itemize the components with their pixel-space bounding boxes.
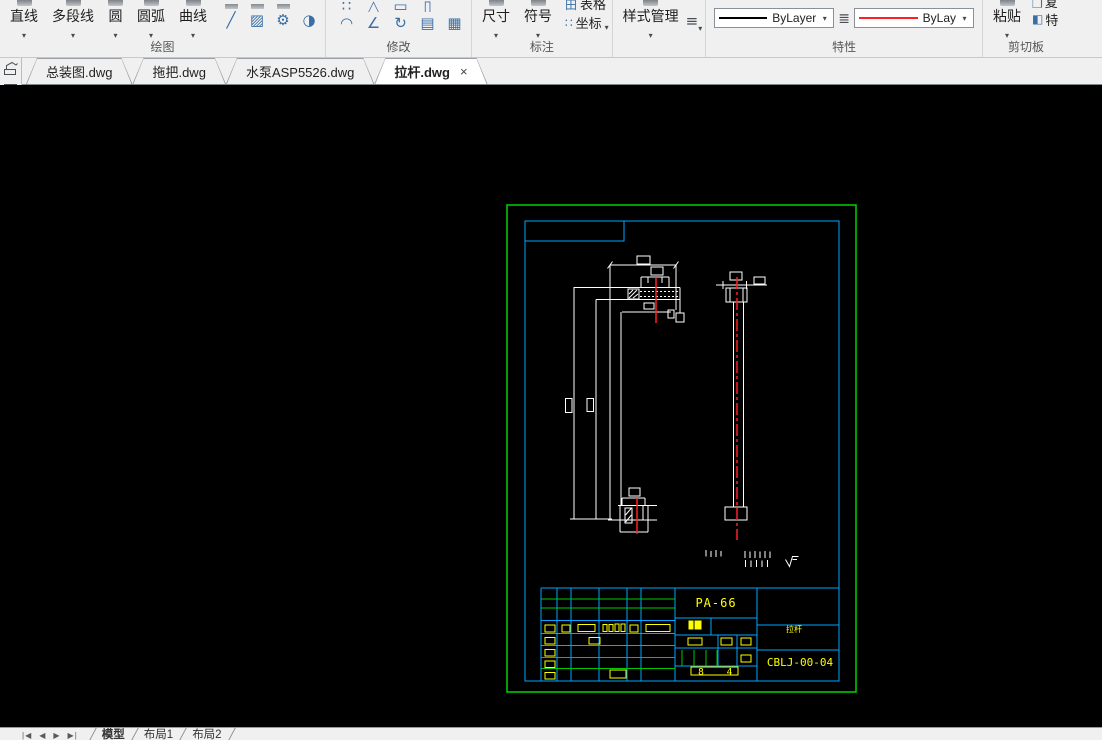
circle-icon [108, 0, 123, 6]
chevron-down-icon [494, 25, 498, 34]
chevron-down-icon [536, 25, 540, 34]
fillet-icon[interactable]: ◠ [333, 12, 360, 34]
lineweight-icon[interactable]: ≣ [838, 10, 850, 27]
style-manager-button[interactable]: 样式管理 [616, 0, 686, 34]
sheet-number-left: 8 [698, 667, 704, 678]
move-icon[interactable]: ∷ [333, 0, 360, 12]
chevron-down-icon [818, 14, 831, 23]
chevron-down-icon [113, 25, 117, 34]
drawing-number-text: CBLJ-00-04 [767, 656, 834, 669]
hatch-icon[interactable]: ▨ [244, 9, 270, 31]
linetype-select-bylayer[interactable]: ByLayer [714, 8, 834, 28]
coordinate-button[interactable]: ∷ 坐标 [565, 13, 609, 32]
group-label-modify: 修改 [329, 40, 468, 57]
chevron-down-icon [605, 18, 609, 27]
pie-icon[interactable]: ◑ [296, 9, 322, 31]
cad-drawing: PA-66 拉杆 CBLJ-00-04 8 4 [0, 85, 1102, 727]
chevron-down-icon [149, 25, 153, 34]
part-side-view [716, 272, 767, 520]
nav-prev-icon[interactable]: ◀ [39, 731, 46, 740]
style-manager-icon [643, 0, 658, 6]
title-block-annotations [545, 621, 751, 679]
chevron-down-icon [698, 18, 702, 27]
offset-icon[interactable]: ▯ [414, 0, 441, 12]
menu-icon[interactable]: ≡ [686, 10, 699, 32]
sheet-tab-model[interactable]: 模型 [93, 728, 134, 740]
polyline-button[interactable]: 多段线 [45, 0, 101, 34]
centerlines [637, 277, 737, 540]
array-icon[interactable]: ▤ [414, 12, 441, 34]
brush-icon: ◧ [1032, 12, 1043, 26]
arc-button[interactable]: 圆弧 [130, 0, 172, 34]
ribbon-group-annotate: 尺寸 符号 田 表格 ∷ 坐标 标注 [472, 0, 613, 57]
ribbon-group-draw: 直线 多段线 圆 圆弧 曲线 [0, 0, 326, 57]
ribbon-group-clipboard: 粘贴 ❐ 复 ◧ 特 剪切板 [983, 0, 1069, 57]
group-label-draw: 绘图 [3, 40, 322, 57]
part-name-text: 拉杆 [786, 624, 802, 634]
curve-button[interactable]: 曲线 [172, 0, 214, 34]
doc-tab-shuibeng[interactable]: 水泵ASP5526.dwg [226, 58, 374, 84]
copy-icon: ❐ [1032, 0, 1043, 11]
modify-icon-cluster: ∷ △ ▭ ▯ ◠ ∠ ↻ ▤ ▦ [333, 0, 468, 34]
drawing-frame [507, 205, 856, 692]
doc-tab-lagan-active[interactable]: 拉杆.dwg × [374, 58, 487, 84]
sheet-nav: |◀ ◀ ▶ ▶| [22, 731, 78, 740]
chevron-down-icon [71, 25, 75, 34]
chevron-down-icon [1005, 25, 1009, 34]
match-properties-button[interactable]: ◧ 特 [1032, 11, 1066, 27]
tab-close-icon[interactable]: × [456, 64, 468, 79]
sheet-tab-layout2[interactable]: 布局2 [183, 728, 230, 740]
polyline-icon [66, 0, 81, 6]
paste-button[interactable]: 粘贴 [986, 0, 1028, 34]
sheet-tab-layout1[interactable]: 布局1 [135, 728, 182, 740]
gear-icon[interactable]: ⚙ [270, 9, 296, 31]
ribbon-group-properties: ByLayer ≣ ByLay 特性 [706, 0, 983, 57]
spline-icon[interactable]: ╱ [218, 9, 244, 31]
symbol-icon [531, 0, 546, 6]
line-icon [17, 0, 32, 6]
group-label-properties: 特性 [714, 40, 974, 57]
chevron-down-icon [649, 25, 653, 34]
ribbon-toolbar: 直线 多段线 圆 圆弧 曲线 [0, 0, 1102, 58]
rectangle-icon[interactable]: ▭ [387, 0, 414, 12]
group-label-clipboard: 剪切板 [986, 40, 1066, 57]
rotate-icon[interactable]: ↻ [387, 12, 414, 34]
gradient-icon[interactable]: ▦ [441, 12, 468, 34]
statusbar: |◀ ◀ ▶ ▶| 模型 布局1 布局2 [0, 727, 1102, 740]
table-button[interactable]: 田 表格 [565, 0, 609, 13]
line-button[interactable]: 直线 [3, 0, 45, 34]
ribbon-group-style: 样式管理 ≡ [613, 0, 707, 57]
linetype-select-red[interactable]: ByLay [854, 8, 974, 28]
document-tabbar: 总装图.dwg 拖把.dwg 水泵ASP5526.dwg 拉杆.dwg × [22, 58, 1102, 85]
mirror-icon[interactable]: △ [360, 0, 387, 12]
table-grid-icon: 田 [565, 0, 577, 13]
coordinate-icon: ∷ [565, 16, 573, 30]
sheet-number-right: 4 [727, 667, 733, 678]
dimension-button[interactable]: 尺寸 [475, 0, 517, 34]
chevron-down-icon [22, 25, 26, 34]
curve-icon [186, 0, 201, 6]
group-label-annotate: 标注 [475, 40, 609, 57]
material-text: PA-66 [695, 596, 736, 610]
nav-next-icon[interactable]: ▶ [53, 731, 60, 740]
circle-button[interactable]: 圆 [101, 0, 130, 34]
roughness-marks [706, 550, 799, 567]
nav-first-icon[interactable]: |◀ [22, 731, 32, 740]
doc-tab-tuoba[interactable]: 拖把.dwg [132, 58, 225, 84]
symbol-button[interactable]: 符号 [517, 0, 559, 34]
dimension-icon [489, 0, 504, 6]
draw-icon-cluster: ╱ ▨ ⚙ ◑ [218, 0, 322, 31]
linetype-sample-red [859, 17, 918, 19]
chamfer-icon[interactable]: ∠ [360, 12, 387, 34]
paste-icon [1000, 0, 1015, 6]
roughness-symbol [786, 557, 799, 567]
group-label-style [616, 40, 703, 57]
doc-tab-zongzhuangtu[interactable]: 总装图.dwg [26, 58, 132, 84]
ribbon-group-modify: ∷ △ ▭ ▯ ◠ ∠ ↻ ▤ ▦ 修改 [326, 0, 472, 57]
chevron-down-icon [958, 14, 971, 23]
part-front-view [566, 256, 685, 532]
linetype-sample-black [719, 17, 767, 19]
layer-tool-icon[interactable] [3, 61, 19, 77]
chevron-down-icon [191, 25, 195, 34]
nav-last-icon[interactable]: ▶| [68, 731, 78, 740]
drawing-canvas[interactable]: PA-66 拉杆 CBLJ-00-04 8 4 [0, 85, 1102, 727]
arc-icon [144, 0, 159, 6]
